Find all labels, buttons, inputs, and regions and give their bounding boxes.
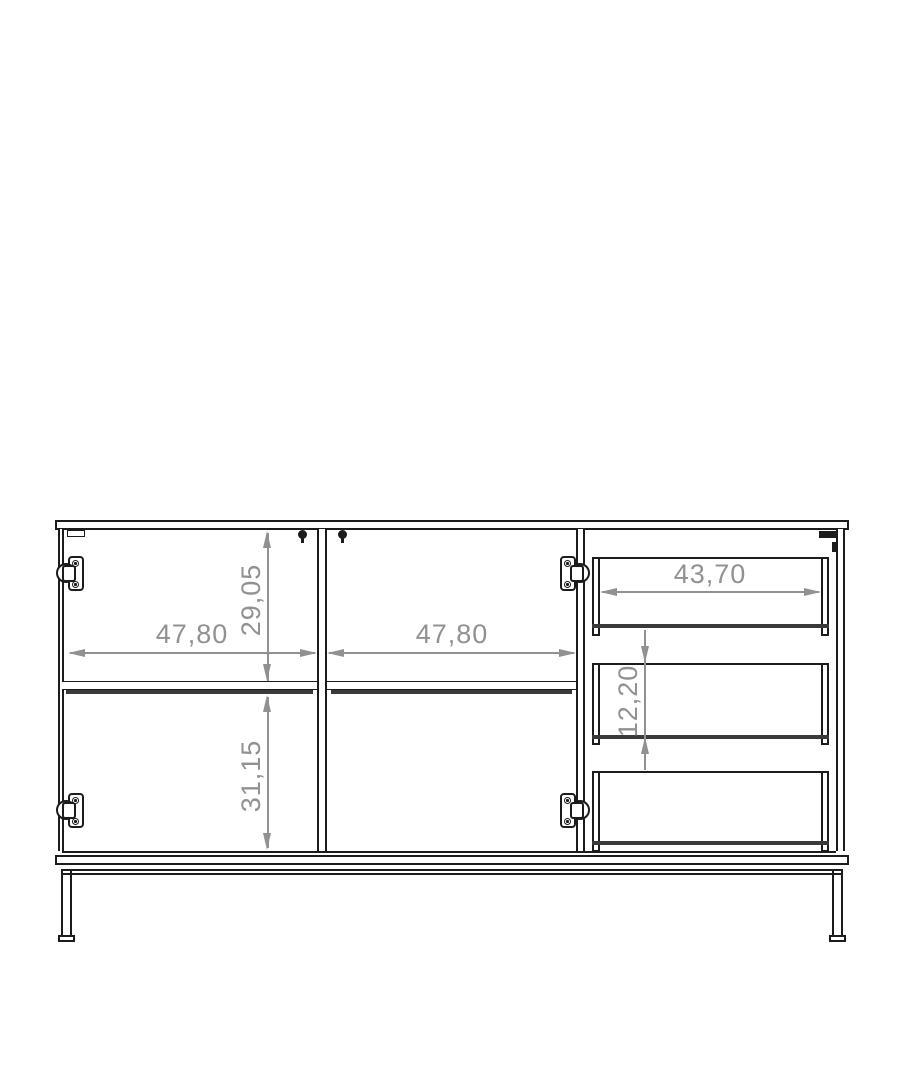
hinge-cup-insert xyxy=(570,565,584,582)
hinge-cup-insert xyxy=(62,565,76,582)
dimension-line xyxy=(329,652,574,654)
arrow-left-icon xyxy=(600,588,617,596)
hinge-screw-icon xyxy=(72,797,79,804)
bracket-top-right-icon xyxy=(819,531,838,538)
base-foot-right xyxy=(829,935,846,942)
base-leg-left xyxy=(61,869,72,937)
dimension-label: 29,05 xyxy=(237,530,265,670)
cam-screw-stem xyxy=(301,538,304,543)
dimension-label: 31,15 xyxy=(237,706,265,846)
hinge-cup-insert xyxy=(570,802,584,819)
arrow-up-icon xyxy=(641,737,649,754)
hinge-right-bottom xyxy=(560,793,590,828)
drawer-rail-right xyxy=(821,771,829,852)
arrow-right-icon xyxy=(300,649,317,657)
shelf-right xyxy=(327,681,576,690)
bracket-top-left-icon xyxy=(67,530,85,537)
arrow-left-icon xyxy=(327,649,344,657)
hinge-screw-icon xyxy=(564,818,571,825)
drawer-rail-left xyxy=(592,663,600,745)
technical-drawing-canvas: 47,80 47,80 43,70 29,05 31,15 12,20 xyxy=(0,0,913,1080)
dimension-line xyxy=(602,591,819,593)
dimension-label: 43,70 xyxy=(640,560,780,588)
dimension-line xyxy=(70,652,315,654)
hinge-screw-icon xyxy=(72,581,79,588)
right-side-panel xyxy=(836,529,845,851)
drawer-rail-right xyxy=(821,663,829,745)
drawer-bottom-line xyxy=(592,624,829,628)
drawer-bottom xyxy=(592,771,829,852)
hinge-screw-icon xyxy=(564,581,571,588)
cam-screw-stem xyxy=(341,538,344,543)
hinge-screw-icon xyxy=(564,797,571,804)
base-foot-left xyxy=(58,935,75,942)
hinge-screw-icon xyxy=(72,560,79,567)
base-rail xyxy=(61,869,843,875)
bracket-top-right-tab xyxy=(832,542,836,552)
dimension-line xyxy=(267,697,269,848)
hinge-screw-icon xyxy=(564,560,571,567)
arrow-right-icon xyxy=(559,649,576,657)
dimension-label: 12,20 xyxy=(614,631,642,771)
center-divider xyxy=(317,529,327,851)
shelf-left xyxy=(62,681,317,690)
hinge-right-top xyxy=(560,556,590,591)
dimension-line xyxy=(267,533,269,681)
drawer-bottom-line xyxy=(592,841,829,845)
dimension-label: 47,80 xyxy=(382,620,522,648)
hinge-left-top xyxy=(56,556,84,591)
hinge-cup-insert xyxy=(62,802,76,819)
shelf-right-shadow-line xyxy=(331,690,572,694)
drawer-rail-left xyxy=(592,771,600,852)
arrow-down-icon xyxy=(641,646,649,663)
top-panel xyxy=(55,520,849,530)
shelf-left-shadow-line xyxy=(66,690,313,694)
hinge-screw-icon xyxy=(72,818,79,825)
drawer-top-edge xyxy=(592,771,829,773)
bottom-panel xyxy=(55,855,849,865)
arrow-left-icon xyxy=(68,649,85,657)
arrow-right-icon xyxy=(804,588,821,596)
base-leg-right xyxy=(832,869,843,937)
hinge-left-bottom xyxy=(56,793,84,828)
